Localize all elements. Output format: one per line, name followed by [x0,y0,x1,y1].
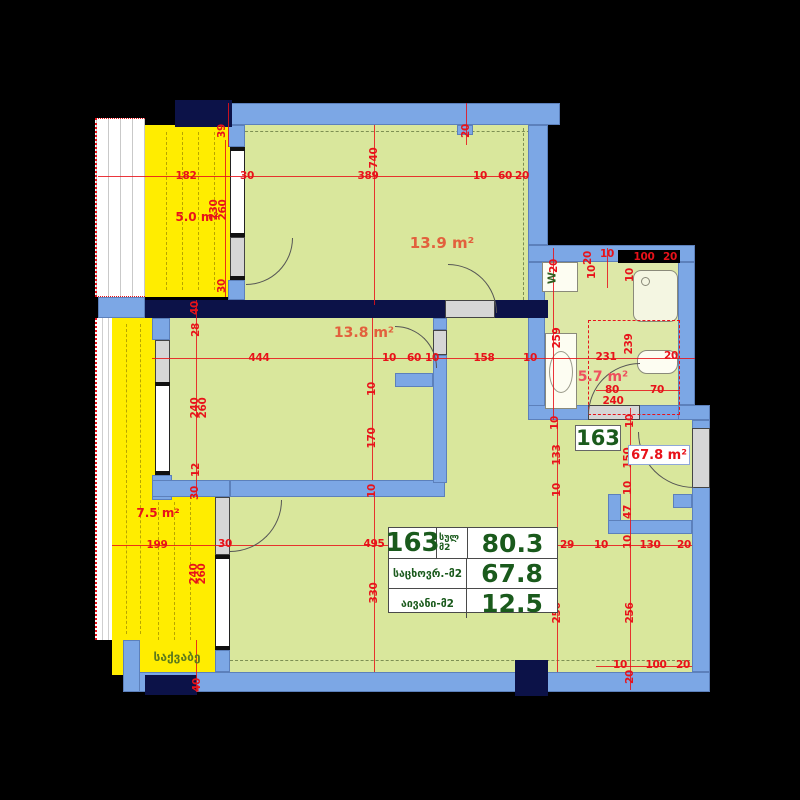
door-opening [155,340,170,385]
balcony-hatch-line [158,502,160,640]
dimension-label: 60 [498,171,512,182]
table-living-label: საცხოვრ.-მ2 [389,559,467,588]
room-area-label-balcony-bottom-left: 7.5 m² [136,506,179,520]
dimension-label: 10 [623,535,634,549]
boiler-room-label: საქვაბე [153,650,200,664]
dimension-label: 40 [190,301,201,315]
table-balcony-value: 12.5 [467,589,557,618]
living-area-value: 67.8 m² [631,448,687,463]
dimension-label: 444 [248,353,269,364]
dimension-label: 20 [515,171,529,182]
wall-segment [608,520,692,534]
dimension-label: 20 [664,351,678,362]
dimension-label: 10 [367,484,378,498]
dimension-label: 30 [218,539,232,550]
dimension-line [372,318,373,480]
table-total-value: 80.3 [467,528,557,558]
wall-segment [228,125,245,147]
dimension-label: 100 [633,252,654,263]
dimension-label: 10 [550,416,561,430]
door-opening [230,237,245,280]
dashed-line [235,131,545,133]
balcony-hatch-line [166,132,168,290]
dimension-label: 80 [605,385,619,396]
dimension-label: 12 [191,463,202,477]
dimension-label: 10 [552,483,563,497]
balcony-hatch-line [126,324,128,634]
window-seal [230,147,245,151]
window [230,147,245,237]
window-seal [215,646,230,650]
dimension-label: 10 [473,171,487,182]
dimension-label: 495 [363,539,384,550]
dimension-label: 30 [190,486,201,500]
structural-column [495,300,548,318]
dimension-label: 100 [645,660,666,671]
washing-machine-label: W [546,272,559,284]
dimension-line [98,176,528,177]
wall-segment [230,480,445,497]
dimension-label: 260 [197,563,208,584]
dimension-label: 20 [663,252,677,263]
room-area-label-room-top: 13.9 m² [410,234,474,252]
dimension-line [228,103,229,147]
dimension-label: 20 [461,124,472,138]
total-label-text: სულ [439,533,459,543]
structural-column [515,660,548,696]
wall-segment [123,640,140,692]
room-area-label-room-middle: 13.8 m² [334,325,394,341]
wall-segment [152,318,170,340]
wall-segment [228,280,245,300]
dimension-label: 40 [192,678,203,692]
balcony-left-strip [112,318,155,498]
dimension-label: 39 [217,124,228,138]
table-balcony-label: აივანი-მ2 [389,589,467,618]
window-seal [155,471,170,475]
dimension-label: 158 [473,353,494,364]
dimension-label: 70 [650,385,664,396]
dimension-label: 256 [625,602,636,623]
wall-segment [673,494,692,508]
door-opening [692,428,710,488]
table-unit-number: 163 [389,528,437,558]
dimension-label: 170 [367,427,378,448]
wall-segment [433,318,447,330]
dimension-label: 133 [552,444,563,465]
dimension-label: 20 [583,251,594,265]
room-area-label-bathroom: 5.7 m² [578,369,628,385]
dimension-label: 47 [623,505,634,519]
living-area-box: 67.8 m² [628,445,690,465]
shower-drain [641,277,650,286]
dimension-label: 28 [191,323,202,337]
dimension-label: 10 [613,660,627,671]
dimension-label: 389 [357,171,378,182]
dimension-label: 199 [146,540,167,551]
dimension-label: 130 [639,540,660,551]
table-total-label: სულ მ2 [437,528,467,558]
wall-segment [215,650,230,672]
dimension-label: 10 [623,481,634,495]
window [155,382,170,475]
dimension-label: 10 [625,414,636,428]
table-row-total: 163 სულ მ2 80.3 [389,528,557,559]
dimension-label: 10 [367,382,378,396]
dimension-label: 10 [523,353,537,364]
dimension-label: 239 [624,333,635,354]
table-row-living: საცხოვრ.-მ2 67.8 [389,559,557,589]
area-summary-table: 163 სულ მ2 80.3 საცხოვრ.-მ2 67.8 აივანი-… [388,527,558,613]
dimension-label: 60 [407,353,421,364]
dimension-label: 740 [369,147,380,168]
window-seal [230,276,245,280]
wall-segment [230,103,560,125]
dimension-label: 231 [595,352,616,363]
shower-tray [633,270,678,322]
dimension-label: 30 [240,171,254,182]
dimension-label: 10 [382,353,396,364]
wall-segment [123,672,710,692]
dimension-label: 260 [218,199,229,220]
dimension-label: 20 [677,540,691,551]
room-area-label-balcony-top-left: 5.0 m² [175,210,218,224]
balcony-railing-left [95,318,112,640]
dimension-label: 182 [175,171,196,182]
dimension-label: 29 [560,540,574,551]
dimension-label: 10 [625,268,636,282]
window-seal [230,233,245,237]
wall-segment [678,405,710,420]
floor-plan: 163 67.8 m² 163 სულ მ2 80.3 საცხოვრ.-მ2 … [0,0,800,800]
dimension-label: 259 [552,327,563,348]
dashed-line [523,128,525,300]
wall-segment [433,355,447,483]
balcony-railing-top-left [95,118,145,297]
room-top [230,115,545,305]
dimension-label: 10 [587,265,598,279]
table-row-balcony: აივანი-მ2 12.5 [389,589,557,618]
balcony-hatch-line [174,502,176,640]
dimension-label: 30 [217,279,228,293]
dimension-label: 20 [549,259,560,273]
structural-column [175,100,232,127]
dimension-label: 10 [594,540,608,551]
dimension-label: 20 [676,660,690,671]
unit-number-box: 163 [575,425,621,451]
table-living-value: 67.8 [467,559,557,588]
dimension-label: 260 [198,397,209,418]
wall-segment [528,125,548,245]
dimension-label: 20 [625,670,636,684]
window-seal [215,555,230,559]
wall-segment [98,297,145,318]
unit-number: 163 [576,426,620,450]
structural-column [145,675,197,695]
dimension-label: 10 [600,249,614,260]
wall-segment [395,373,433,387]
balcony-hatch-line [140,324,142,634]
dimension-label: 10 [425,353,439,364]
dimension-label: 330 [369,582,380,603]
window-seal [155,382,170,386]
wall-segment [678,262,695,405]
dimension-label: 240 [602,396,623,407]
total-unit-text: მ2 [439,543,450,553]
window [215,555,230,650]
